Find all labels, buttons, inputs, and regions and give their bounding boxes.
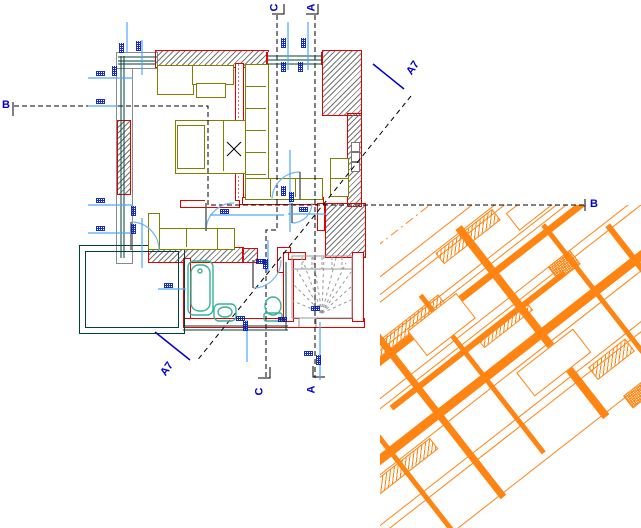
dimension-figure-mark (289, 192, 294, 202)
linework-overlay (0, 0, 641, 528)
bathtub-drain (198, 269, 202, 273)
dimension-figure-mark (278, 317, 287, 322)
stair-tread (322, 263, 346, 313)
door-arc-hall (292, 203, 312, 223)
dimension-figure-mark (281, 186, 286, 196)
dimension-figure-mark (281, 62, 286, 72)
dimension-figure-mark (220, 209, 229, 214)
dimension-figure-mark (131, 224, 136, 234)
dimension-figure-mark (301, 38, 306, 48)
dimension-figure-mark (311, 306, 320, 311)
dimension-figure-mark (96, 71, 105, 76)
door-arc-living (206, 203, 234, 231)
stair-tread (322, 286, 352, 313)
cad-drawing-canvas: B B C A C A A7 A7 (0, 0, 641, 528)
dimension-figure-mark (119, 43, 124, 53)
dimension-figure-mark (299, 207, 308, 212)
dimension-figure-mark (263, 259, 268, 269)
dimension-figure-mark (281, 38, 286, 48)
dimension-figure-mark (304, 351, 313, 356)
dimension-figure-mark (96, 226, 105, 231)
dimension-figure-mark (112, 66, 117, 76)
a7-pointer-bottom (155, 332, 190, 360)
dimension-figure-mark (298, 62, 303, 72)
stair-tread (322, 272, 351, 313)
dimension-figure-mark (96, 198, 105, 203)
stair-tread (322, 258, 336, 313)
a7-pointer-top (373, 64, 404, 89)
entry-threshold (299, 318, 316, 327)
section-line-a7[interactable] (196, 96, 411, 362)
dimension-figure-mark (164, 283, 173, 288)
stair-tread (313, 257, 322, 313)
dimension-figure-mark (136, 41, 141, 51)
bathtub-inner (191, 265, 210, 311)
column-x-mark (227, 142, 241, 156)
dimension-figure-mark (131, 206, 136, 216)
door-arc-bedroom (272, 172, 300, 200)
dimension-figure-mark (243, 321, 248, 331)
washbasin-bowl (218, 307, 232, 317)
dimension-figure-mark (316, 355, 321, 365)
staircase[interactable] (292, 256, 352, 318)
dimension-figure-mark (96, 99, 105, 104)
